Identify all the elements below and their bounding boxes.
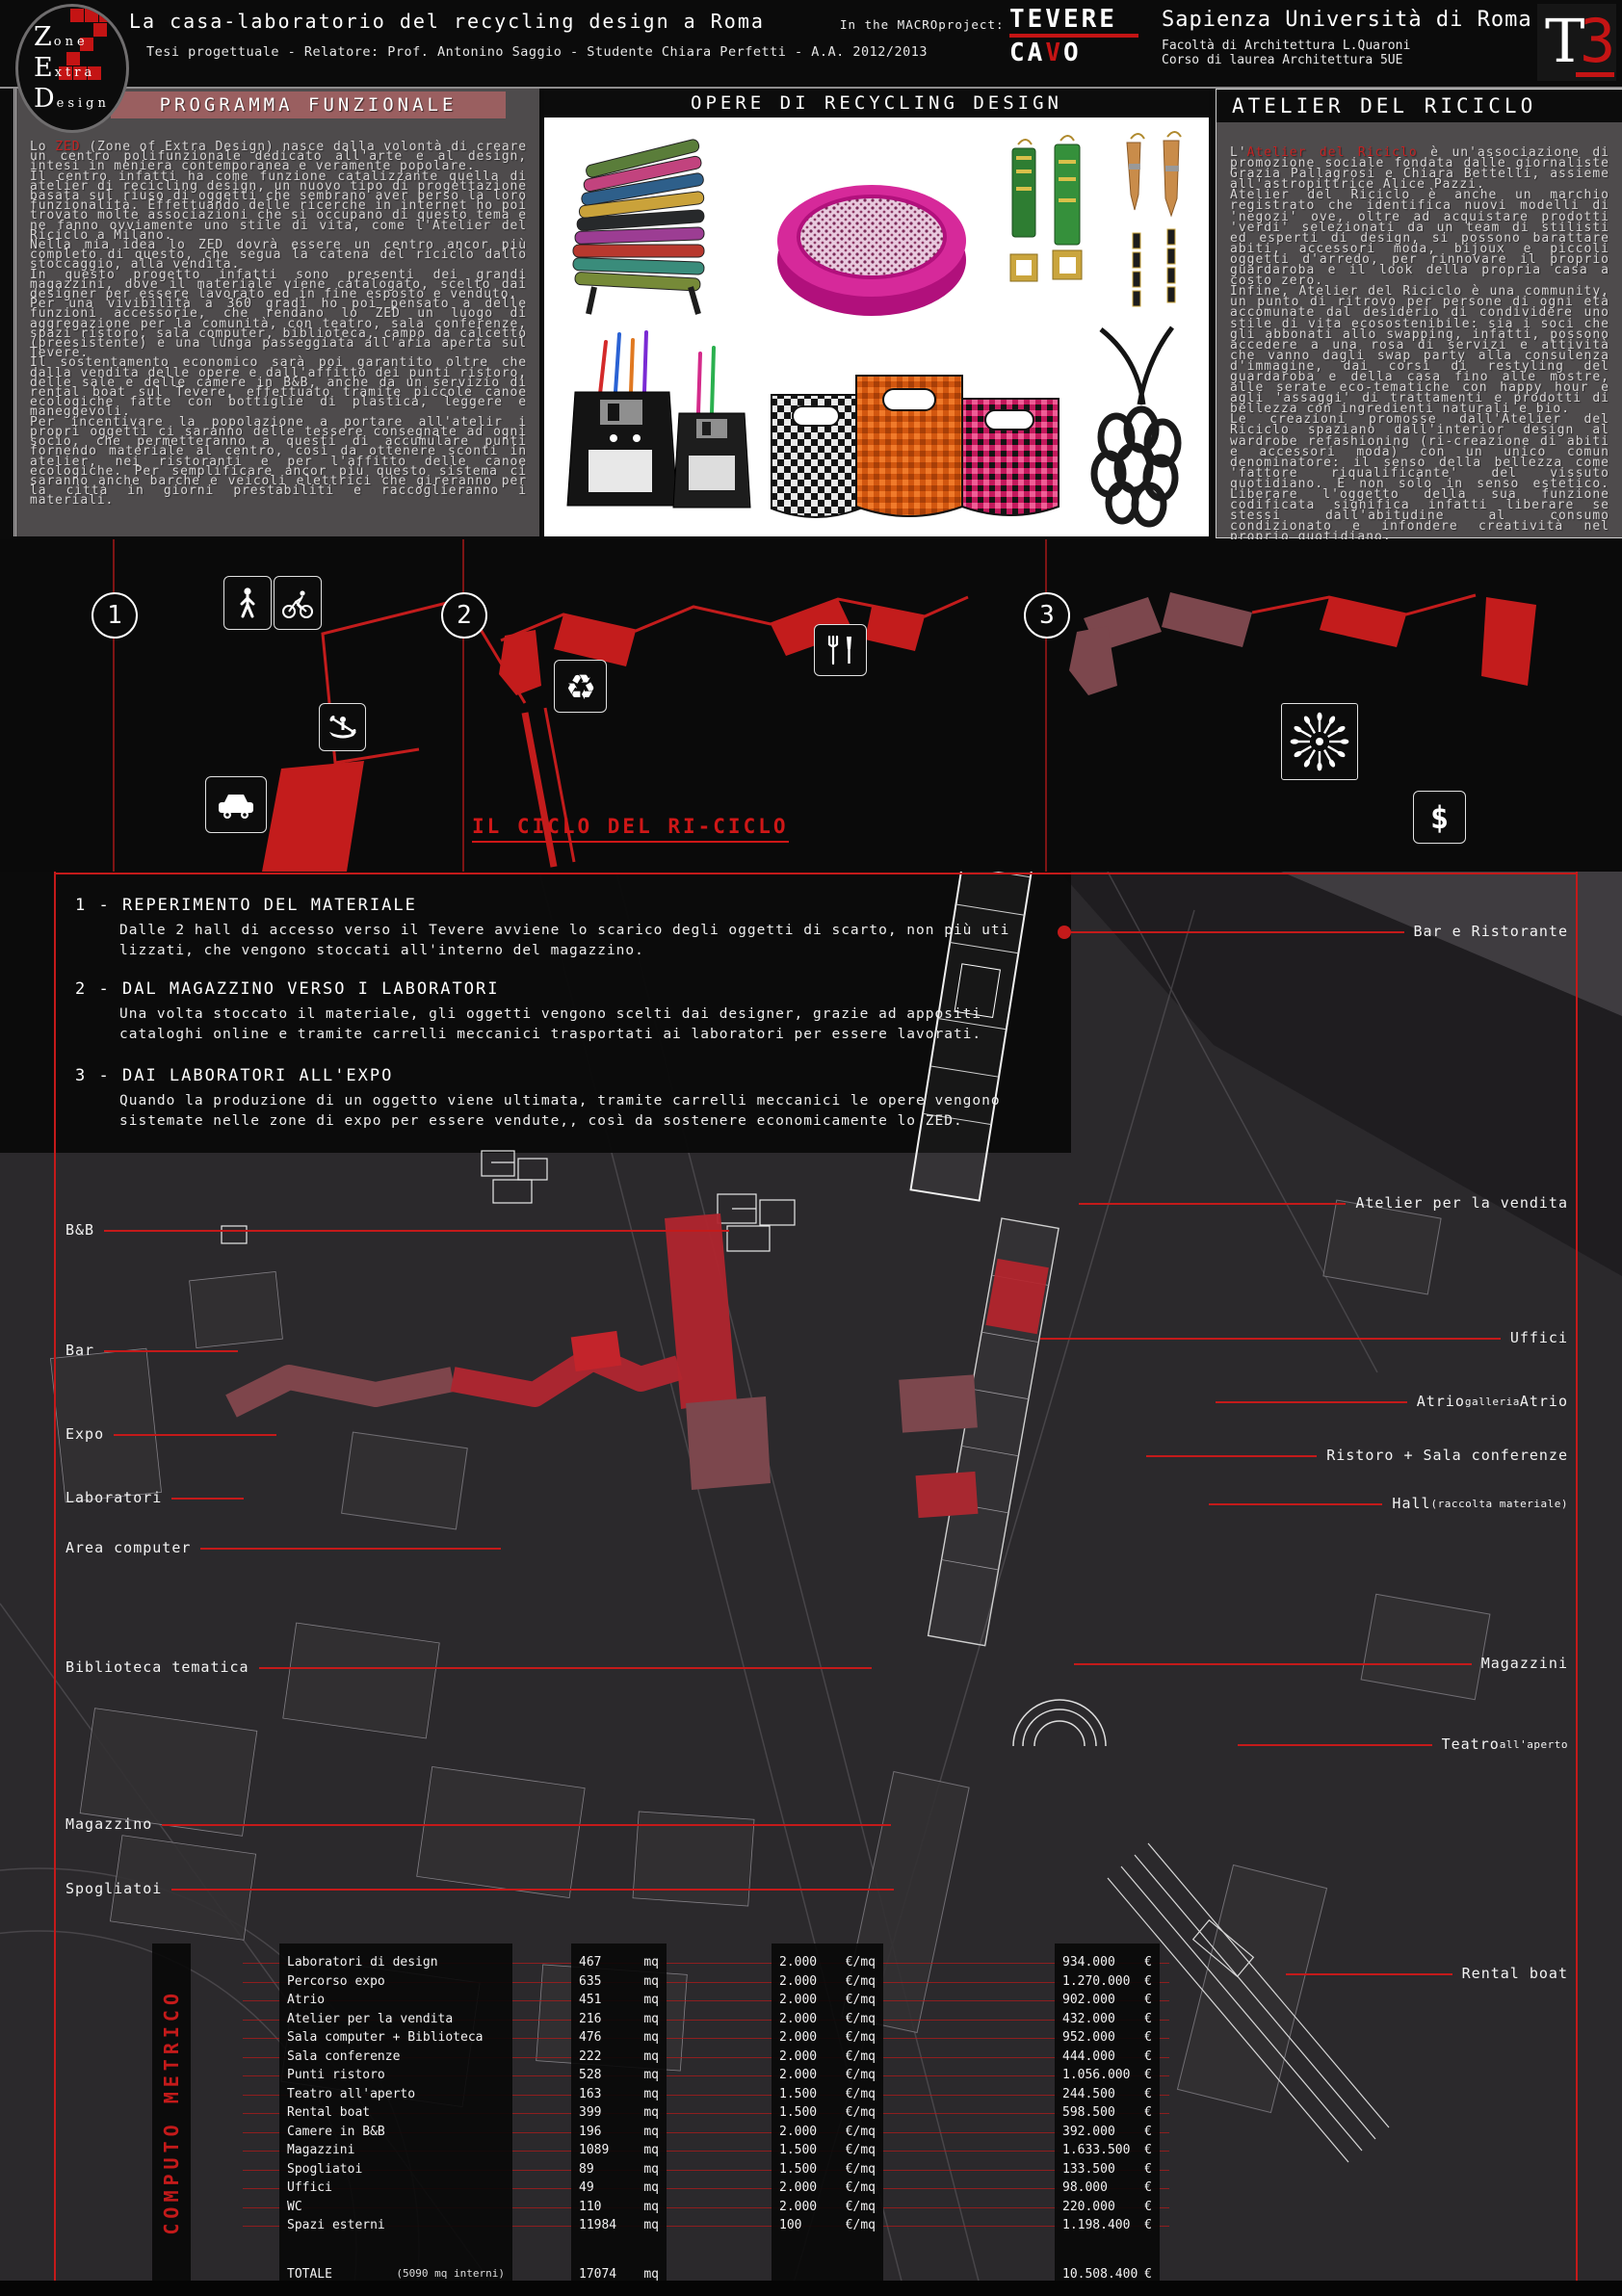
plan-label-laboratori: Laboratori	[65, 1489, 162, 1506]
plan-label-magazzino: Magazzino	[65, 1815, 152, 1833]
plan-label-bar-e-ristorante: Bar e Ristorante	[1414, 923, 1569, 940]
faculty-course: Facoltà di Architettura L.Quaroni Corso …	[1162, 39, 1532, 67]
panel-opere-recycling: OPERE DI RECYCLING DESIGN	[544, 89, 1209, 536]
panel-atelier-riciclo: ATELIER DEL RICICLO L'Atelier del Ricicl…	[1216, 89, 1622, 538]
table-cell: 2.000€/mq	[779, 1993, 876, 2009]
table-column-rate: 2.000€/mq2.000€/mq2.000€/mq2.000€/mq2.00…	[772, 1944, 883, 2281]
table-cell: Punti ristoro	[287, 2068, 505, 2084]
panel-programma-funzionale: PROGRAMMA FUNZIONALE Lo ZED (Zone of Ext…	[13, 89, 539, 536]
plan-label-spogliatoi: Spogliatoi	[65, 1880, 162, 1897]
logo-word-zone: Zone	[20, 24, 110, 55]
cavo-v: V	[1045, 39, 1063, 67]
table-cell: Atrio	[287, 1993, 505, 2009]
image-tire-pouf	[771, 144, 973, 323]
leader-line-left-3	[171, 1498, 244, 1500]
table-cell: 432.000€	[1062, 2012, 1152, 2028]
tevere-cavo-logo: TEVERE CAVO	[1009, 6, 1146, 66]
leader-line-right-0	[1064, 931, 1404, 933]
cycle-hall-shape-1	[262, 761, 364, 872]
top-section: PROGRAMMA FUNZIONALE Lo ZED (Zone of Ext…	[0, 85, 1622, 539]
dollar-icon: $	[1413, 791, 1466, 844]
image-rubber-necklace	[1072, 322, 1202, 529]
table-cell: 196mq	[579, 2125, 659, 2141]
table-cell: Spogliatoi	[287, 2162, 505, 2179]
plan-label-rental-boat: Rental boat	[1462, 1965, 1568, 1982]
table-cell: 1.500€/mq	[779, 2143, 876, 2159]
recycle-icon: ♻	[554, 660, 607, 713]
plan-step-1: 1 - REPERIMENTO DEL MATERIALE Dalle 2 ha…	[75, 896, 1009, 961]
plan-label-area-computer: Area computer	[65, 1539, 191, 1556]
plan-label-atelier-per-la-vendita: Atelier per la vendita	[1355, 1194, 1568, 1212]
table-cell: Rental boat	[287, 2105, 505, 2122]
car-icon	[205, 776, 267, 833]
plan-label-bar: Bar	[65, 1342, 94, 1359]
table-cell: Spazi esterni	[287, 2218, 505, 2234]
opere-heading: OPERE DI RECYCLING DESIGN	[544, 89, 1209, 117]
leader-line-left-1	[104, 1350, 238, 1352]
cycle-step-2: 2	[441, 592, 487, 639]
table-cell: Sala conferenze	[287, 2049, 505, 2066]
page-title: La casa-laboratorio del recycling design…	[129, 10, 765, 33]
table-cell: 2.000€/mq	[779, 2180, 876, 2197]
logo-word-extra: Extra	[20, 55, 110, 86]
table-cell: 220.000€	[1062, 2200, 1152, 2216]
table-cell: 2.000€/mq	[779, 2049, 876, 2066]
leader-line-left-2	[114, 1434, 276, 1436]
zed-logo-words: Zone Extra Design	[20, 24, 110, 117]
leader-line-left-5	[259, 1667, 872, 1669]
step-3-body: Quando la produzione di un oggetto viene…	[119, 1091, 1001, 1132]
leader-line-right-6	[1074, 1663, 1472, 1665]
plan-label-expo: Expo	[65, 1425, 104, 1443]
cycle-caption: IL CICLO DEL RI-CICLO	[472, 815, 789, 843]
tevere-text: TEVERE	[1009, 6, 1146, 33]
plan-label-ristoro-sala-conferenze: Ristoro + Sala conferenze	[1326, 1447, 1568, 1464]
table-cell: 952.000€	[1062, 2030, 1152, 2047]
table-cell: 216mq	[579, 2012, 659, 2028]
table-cell: 451mq	[579, 1993, 659, 2009]
leader-line-right-7	[1238, 1744, 1432, 1746]
table-cell: Uffici	[287, 2180, 505, 2197]
table-column-names: Laboratori di designPercorso expoAtrioAt…	[279, 1944, 512, 2281]
plan-step-2: 2 - DAL MAGAZZINO VERSO I LABORATORI Una…	[75, 979, 981, 1045]
t3-badge: T 3	[1537, 4, 1616, 81]
atelier-heading: ATELIER DEL RICICLO	[1216, 90, 1622, 122]
faculty-name: Facoltà di Architettura L.Quaroni	[1162, 39, 1532, 53]
zed-logo: Zone Extra Design	[15, 4, 129, 133]
restaurant-icon	[814, 624, 867, 676]
table-column-cost: 934.000€1.270.000€902.000€432.000€952.00…	[1055, 1944, 1160, 2281]
table-cell: 2.000€/mq	[779, 2030, 876, 2047]
leader-line-right-4	[1146, 1455, 1317, 1457]
table-cell: 598.500€	[1062, 2105, 1152, 2122]
svg-text:♻: ♻	[564, 668, 595, 708]
leader-line-left-0	[104, 1230, 729, 1232]
cycle-step-1: 1	[92, 592, 138, 639]
table-cell: 89mq	[579, 2162, 659, 2179]
leader-line-left-7	[171, 1889, 894, 1891]
table-cell: 163mq	[579, 2087, 659, 2103]
university-block: Sapienza Università di Roma Facoltà di A…	[1162, 8, 1532, 67]
table-cell: Laboratori di design	[287, 1955, 505, 1971]
marker-line-1	[113, 539, 115, 872]
leader-line-right-5	[1209, 1503, 1382, 1505]
table-cell: 467mq	[579, 1955, 659, 1971]
plan-label-biblioteca-tematica: Biblioteca tematica	[65, 1658, 249, 1676]
table-cell: 1.198.400€	[1062, 2218, 1152, 2234]
leader-line-left-6	[162, 1824, 891, 1826]
cavo-pre: CA	[1009, 39, 1045, 67]
table-cell: 11984mq	[579, 2218, 659, 2234]
table-cell: 110mq	[579, 2200, 659, 2216]
leader-line-right-2	[1040, 1338, 1501, 1340]
macro-project-label: In the MACROproject:	[840, 17, 1005, 32]
table-cell: 2.000€/mq	[779, 2200, 876, 2216]
marker-line-2	[462, 539, 464, 872]
leader-line-right-3	[1216, 1401, 1407, 1403]
table-cell: 2.000€/mq	[779, 2125, 876, 2141]
table-cell: Sala computer + Biblioteca	[287, 2030, 505, 2047]
plan-label-atrio-galleria-atrio: Atrio galleria Atrio	[1417, 1393, 1568, 1410]
table-cell: 1.633.500€	[1062, 2143, 1152, 2159]
table-cell: 49mq	[579, 2180, 659, 2197]
image-floppy-pen-holders	[556, 325, 763, 532]
table-cell: 2.000€/mq	[779, 1955, 876, 1971]
table-cell: 635mq	[579, 1974, 659, 1991]
plan-step-3: 3 - DAI LABORATORI ALL'EXPO Quando la pr…	[75, 1066, 1001, 1132]
table-cell: 1089mq	[579, 2143, 659, 2159]
table-cell: 934.000€	[1062, 1955, 1152, 1971]
table-cell: 2.000€/mq	[779, 2068, 876, 2084]
plan-label-uffici: Uffici	[1510, 1329, 1568, 1346]
table-cell: 902.000€	[1062, 1993, 1152, 2009]
kayak-icon	[319, 703, 366, 751]
cavo-text: CAVO	[1009, 39, 1146, 66]
cavo-post: O	[1063, 39, 1082, 67]
table-cell: 1.500€/mq	[779, 2105, 876, 2122]
page-subtitle: Tesi progettuale - Relatore: Prof. Anton…	[146, 44, 928, 60]
step-1-title: 1 - REPERIMENTO DEL MATERIALE	[75, 896, 1009, 915]
step-1-body: Dalle 2 hall di accesso verso il Tevere …	[119, 921, 1009, 961]
image-flipflop-chair	[556, 135, 744, 318]
computo-metrico-title: COMPUTO METRICO	[152, 1944, 191, 2281]
image-circuit-earrings	[997, 131, 1093, 304]
maroon-hall-block	[686, 1396, 771, 1490]
header-bar: La casa-laboratorio del recycling design…	[0, 0, 1622, 89]
university-name: Sapienza Università di Roma	[1162, 8, 1532, 32]
table-cell: 2.000€/mq	[779, 2012, 876, 2028]
dollar-glyph: $	[1430, 799, 1449, 836]
table-cell: 133.500€	[1062, 2162, 1152, 2179]
table-cell: Percorso expo	[287, 1974, 505, 1991]
table-cell: 1.500€/mq	[779, 2162, 876, 2179]
image-clothespin-earrings	[1108, 127, 1199, 320]
marker-line-3	[1045, 539, 1047, 872]
table-cell: Atelier per la vendita	[287, 2012, 505, 2028]
table-cell: Teatro all'aperto	[287, 2087, 505, 2103]
table-column-area: 467mq635mq451mq216mq476mq222mq528mq163mq…	[571, 1944, 667, 2281]
course-name: Corso di laurea Architettura 5UE	[1162, 53, 1532, 67]
table-cell: Camere in B&B	[287, 2125, 505, 2141]
table-cell: 244.500€	[1062, 2087, 1152, 2103]
table-cell: 1.056.000€	[1062, 2068, 1152, 2084]
leader-line-right-1	[1079, 1203, 1346, 1205]
table-cell: 392.000€	[1062, 2125, 1152, 2141]
table-cell: 1.500€/mq	[779, 2087, 876, 2103]
table-cell: 444.000€	[1062, 2049, 1152, 2066]
plan-label-teatro-all-aperto: Teatro all'aperto	[1442, 1735, 1568, 1753]
logo-word-design: Design	[20, 86, 110, 117]
table-cell: 2.000€/mq	[779, 1974, 876, 1991]
table-cell: 98.000€	[1062, 2180, 1152, 2197]
utensil-clock-icon	[1281, 703, 1358, 780]
cycle-band: 1 2 3	[0, 539, 1622, 872]
leader-line-left-4	[200, 1548, 501, 1550]
bottom-strip	[0, 2281, 1622, 2296]
step-3-title: 3 - DAI LABORATORI ALL'EXPO	[75, 1066, 1001, 1085]
image-woven-bags	[764, 318, 1067, 532]
cycle-step-3: 3	[1024, 592, 1070, 639]
cyclist-icon	[274, 576, 322, 630]
table-cell: 528mq	[579, 2068, 659, 2084]
table-cell: 100€/mq	[779, 2218, 876, 2234]
leader-line-right-8	[1286, 1973, 1452, 1975]
table-cell: 222mq	[579, 2049, 659, 2066]
plan-label-hall-raccolta-materiale-: Hall (raccolta materiale)	[1392, 1495, 1568, 1512]
plan-label-magazzini: Magazzini	[1481, 1655, 1568, 1672]
plan-label-b-b: B&B	[65, 1221, 94, 1239]
thesis-poster: La casa-laboratorio del recycling design…	[0, 0, 1622, 2296]
programma-heading: PROGRAMMA FUNZIONALE	[111, 91, 506, 118]
step-2-title: 2 - DAL MAGAZZINO VERSO I LABORATORI	[75, 979, 981, 999]
atelier-body-text: L'Atelier del Riciclo è un'associazione …	[1230, 147, 1609, 542]
step-2-body: Una volta stoccato il materiale, gli ogg…	[119, 1004, 981, 1045]
table-cell: Magazzini	[287, 2143, 505, 2159]
badge-number: 3	[1580, 6, 1615, 76]
table-cell: WC	[287, 2200, 505, 2216]
pedestrian-icon	[223, 576, 272, 630]
table-cell: 399mq	[579, 2105, 659, 2122]
badge-underline	[1576, 72, 1614, 77]
table-cell: 476mq	[579, 2030, 659, 2047]
tevere-red-line	[1009, 34, 1138, 38]
cycle-red-trapezoid	[1481, 597, 1536, 686]
programma-body-text: Lo ZED (Zone of Extra Design) nasce dall…	[30, 143, 527, 507]
table-cell: 1.270.000€	[1062, 1974, 1152, 1991]
